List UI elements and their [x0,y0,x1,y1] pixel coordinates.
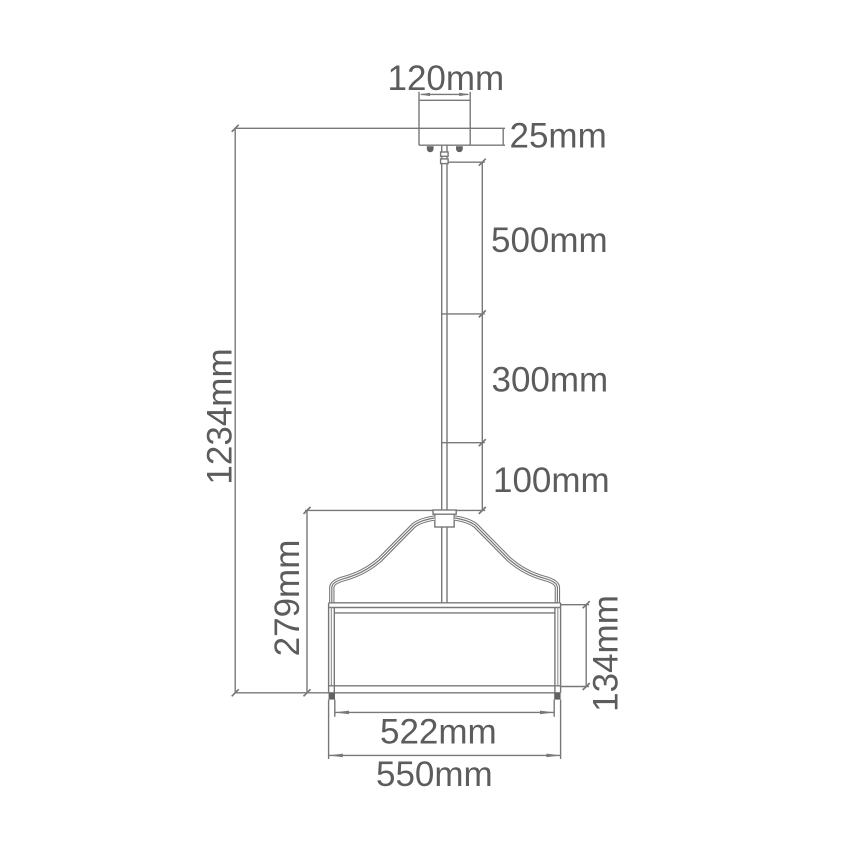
svg-text:500mm: 500mm [491,221,608,260]
svg-text:550mm: 550mm [376,755,493,794]
svg-text:25mm: 25mm [510,117,607,156]
svg-text:100mm: 100mm [493,461,610,500]
svg-text:1234mm: 1234mm [201,348,240,484]
svg-text:120mm: 120mm [388,59,505,98]
svg-text:279mm: 279mm [268,540,307,657]
svg-text:134mm: 134mm [587,595,626,712]
svg-text:522mm: 522mm [380,713,497,752]
svg-text:300mm: 300mm [492,361,609,400]
